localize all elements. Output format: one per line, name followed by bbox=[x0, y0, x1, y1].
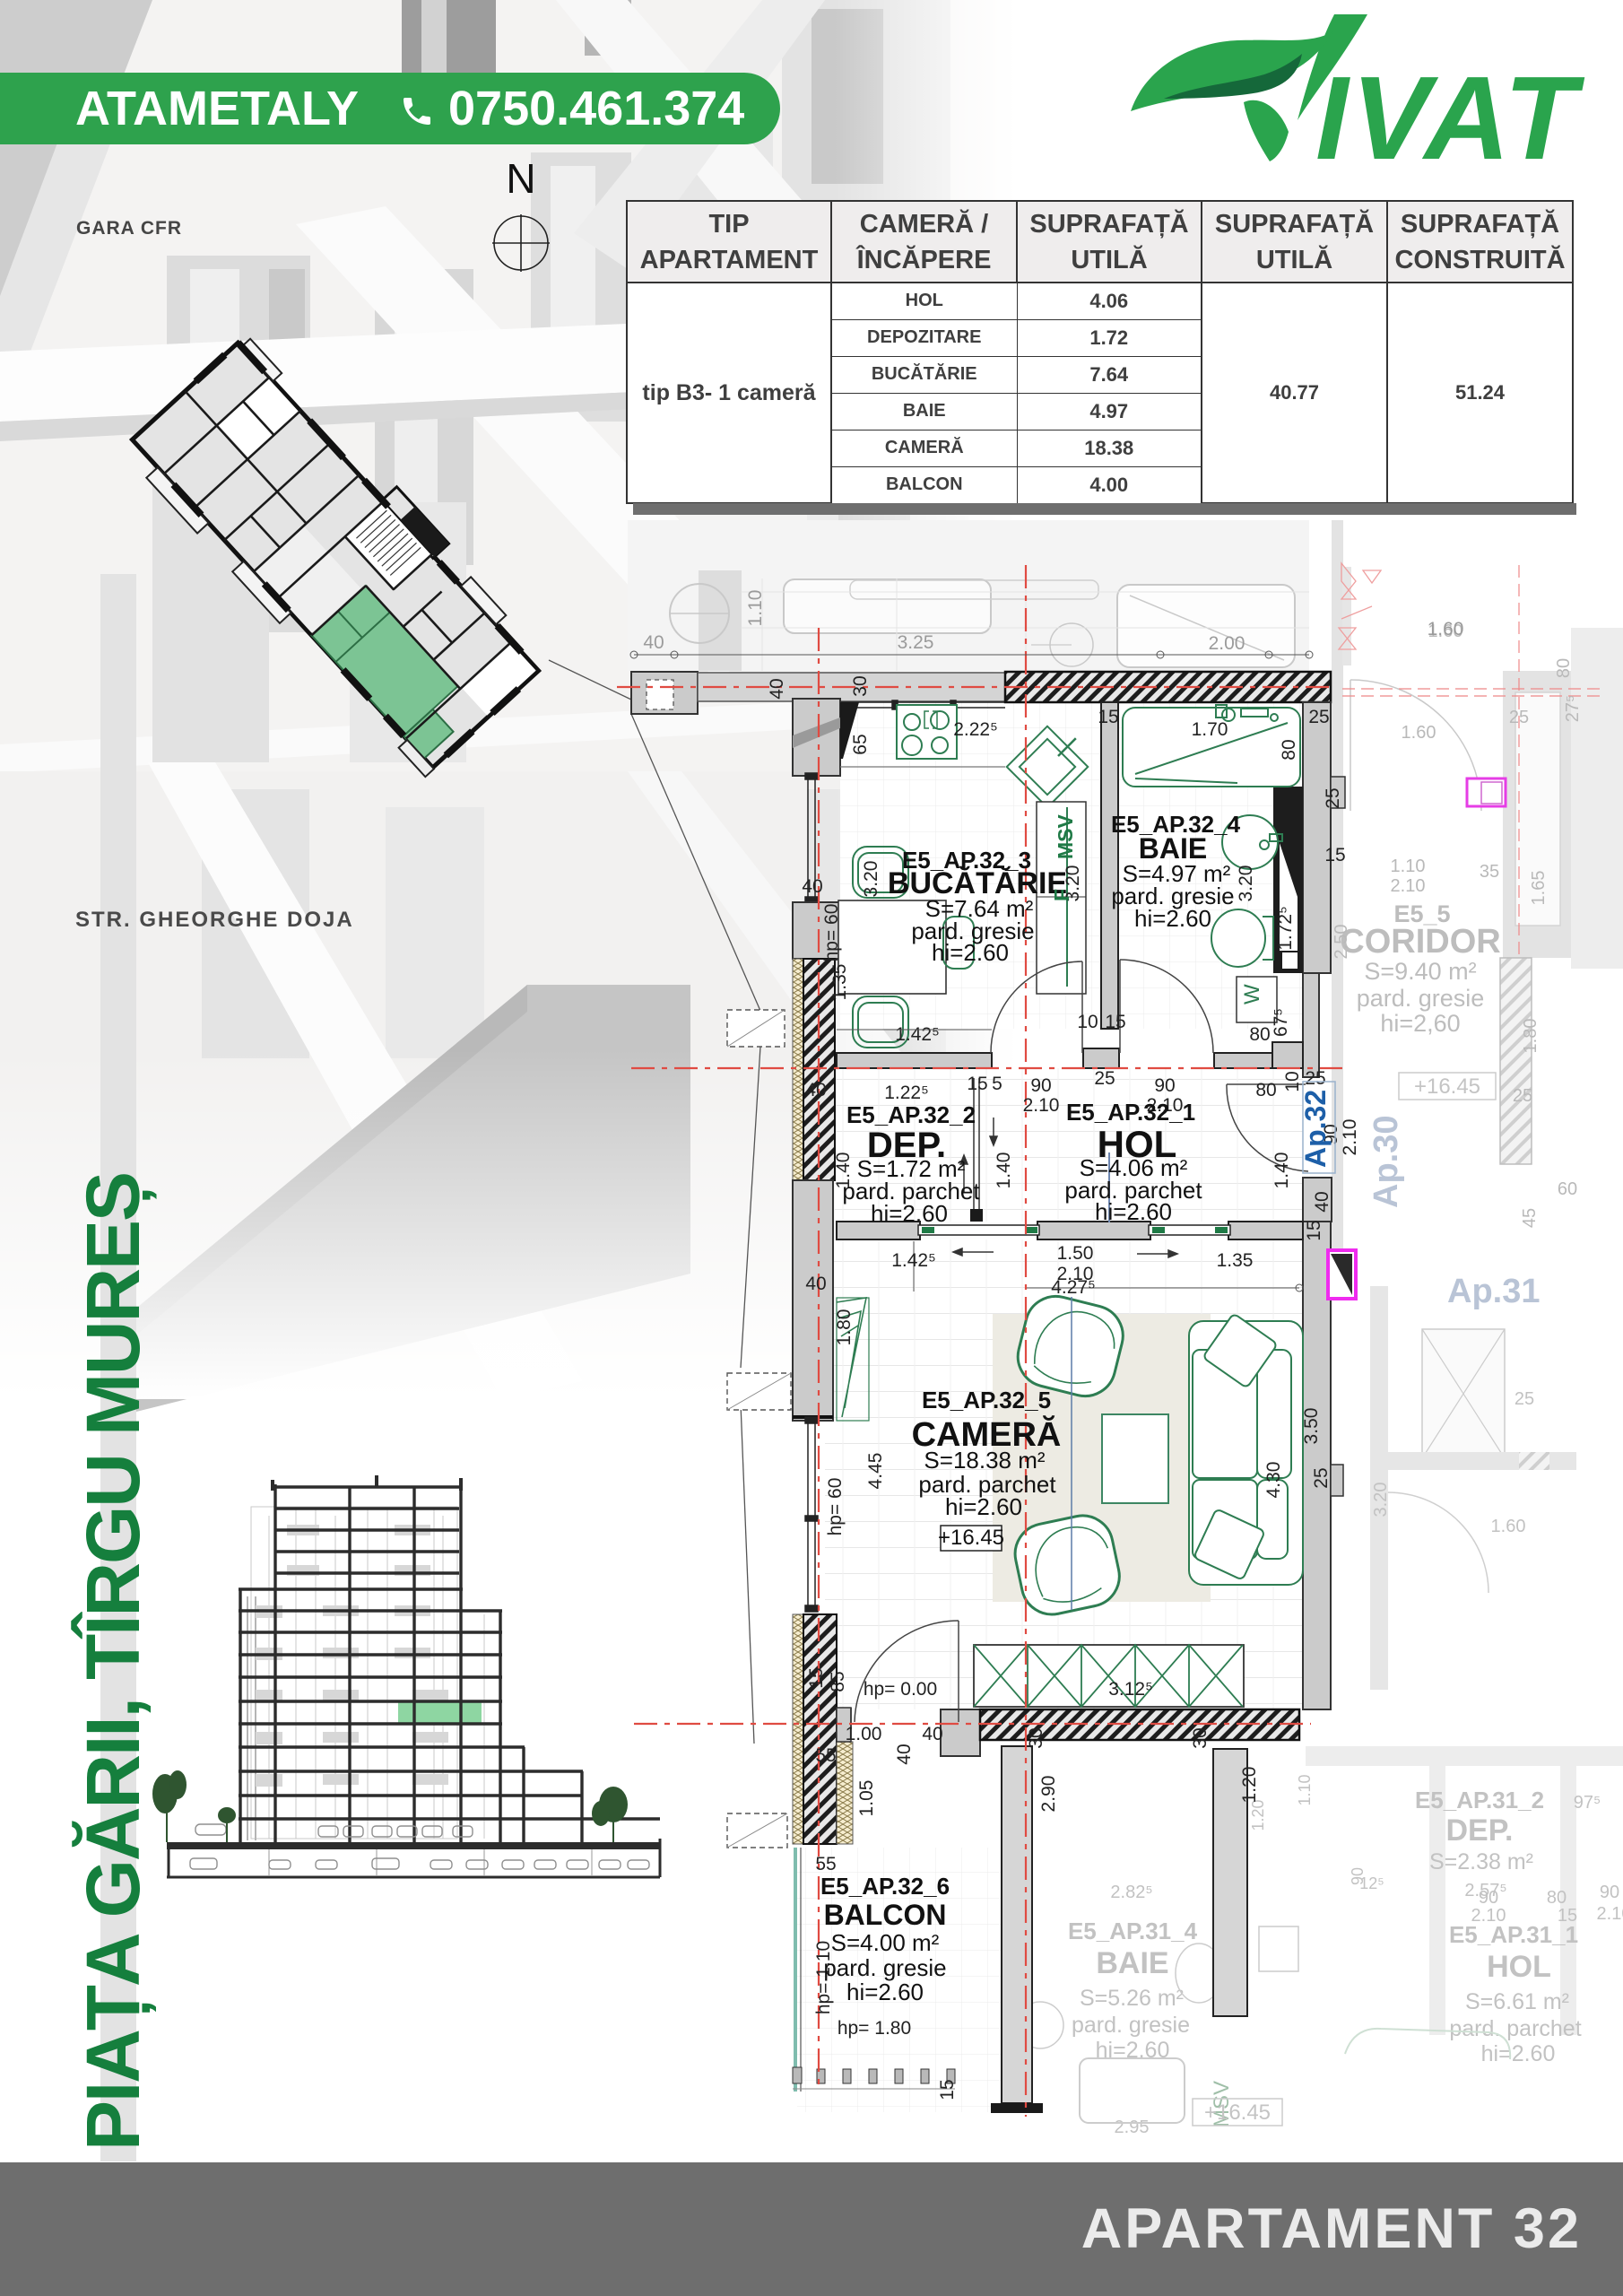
svg-text:15: 15 bbox=[967, 1074, 987, 1094]
svg-text:Ap.32: Ap.32 bbox=[1299, 1090, 1332, 1168]
svg-text:E5_AP.31_4: E5_AP.31_4 bbox=[1068, 1918, 1198, 1944]
svg-text:15: 15 bbox=[1304, 1220, 1324, 1240]
svg-text:25: 25 bbox=[1323, 787, 1343, 808]
svg-text:65: 65 bbox=[850, 734, 871, 754]
svg-text:hp= 60: hp= 60 bbox=[825, 1478, 846, 1536]
svg-text:80: 80 bbox=[1279, 739, 1299, 760]
svg-text:hp= 1.80: hp= 1.80 bbox=[838, 2018, 911, 2039]
svg-text:80: 80 bbox=[1249, 1024, 1270, 1045]
svg-text:S=6.61 m²: S=6.61 m² bbox=[1465, 1989, 1569, 2014]
svg-text:15: 15 bbox=[806, 1667, 827, 1688]
svg-text:25: 25 bbox=[1311, 1467, 1332, 1488]
svg-text:15: 15 bbox=[1105, 1012, 1125, 1032]
svg-text:hp= 60: hp= 60 bbox=[821, 904, 842, 962]
svg-text:2.10: 2.10 bbox=[1471, 1906, 1506, 1926]
svg-text:N: N bbox=[506, 157, 535, 202]
svg-text:3.20: 3.20 bbox=[1371, 1483, 1391, 1518]
svg-text:E5_AP.32_5: E5_AP.32_5 bbox=[922, 1387, 1051, 1413]
svg-text:HOL: HOL bbox=[1487, 1950, 1551, 1984]
svg-text:3.25: 3.25 bbox=[898, 632, 934, 653]
svg-text:3.20: 3.20 bbox=[1236, 865, 1256, 902]
svg-text:pard. gresie: pard. gresie bbox=[823, 1954, 946, 1981]
svg-text:hi=2.60: hi=2.60 bbox=[871, 1200, 948, 1227]
svg-text:pard. gresie: pard. gresie bbox=[1357, 985, 1485, 1012]
svg-text:S=2.38 m²: S=2.38 m² bbox=[1429, 1849, 1533, 1874]
svg-text:1.22⁵: 1.22⁵ bbox=[884, 1083, 929, 1103]
svg-text:1.60: 1.60 bbox=[1491, 1517, 1526, 1536]
svg-text:15: 15 bbox=[937, 2079, 958, 2100]
svg-text:25: 25 bbox=[1094, 1068, 1115, 1089]
svg-text:1.60: 1.60 bbox=[1428, 619, 1464, 639]
svg-text:55: 55 bbox=[815, 1745, 836, 1766]
svg-text:3.12⁵: 3.12⁵ bbox=[1108, 1679, 1153, 1700]
svg-text:1.40: 1.40 bbox=[1271, 1152, 1292, 1189]
svg-text:90: 90 bbox=[1349, 1867, 1367, 1885]
svg-text:1.10: 1.10 bbox=[1391, 857, 1426, 876]
svg-text:3.20: 3.20 bbox=[861, 861, 881, 898]
svg-text:1.72⁵: 1.72⁵ bbox=[1275, 906, 1296, 951]
svg-text:40: 40 bbox=[894, 1744, 915, 1764]
svg-text:S=4.00 m²: S=4.00 m² bbox=[831, 1929, 940, 1956]
svg-text:hi=2.60: hi=2.60 bbox=[945, 1493, 1022, 1520]
svg-text:2.10: 2.10 bbox=[1023, 1095, 1060, 1116]
svg-text:90: 90 bbox=[1030, 1075, 1051, 1096]
svg-text:90: 90 bbox=[1479, 1888, 1498, 1908]
svg-text:+16.45: +16.45 bbox=[938, 1526, 1004, 1550]
svg-text:1.50: 1.50 bbox=[1057, 1243, 1094, 1264]
svg-text:4.30: 4.30 bbox=[1263, 1462, 1284, 1499]
svg-text:1.60: 1.60 bbox=[1402, 723, 1436, 743]
svg-text:5: 5 bbox=[992, 1074, 1002, 1094]
svg-text:BAIE: BAIE bbox=[1096, 1946, 1168, 1980]
svg-text:25: 25 bbox=[1509, 708, 1529, 727]
svg-text:Ap.30: Ap.30 bbox=[1367, 1116, 1405, 1208]
svg-text:30: 30 bbox=[1190, 1727, 1211, 1748]
svg-text:90: 90 bbox=[1154, 1075, 1175, 1096]
svg-text:F: F bbox=[1050, 889, 1073, 901]
svg-text:E5_AP.32_6: E5_AP.32_6 bbox=[820, 1873, 950, 1900]
svg-text:40: 40 bbox=[805, 1080, 826, 1100]
svg-text:80: 80 bbox=[1255, 1080, 1276, 1100]
svg-text:2.82⁵: 2.82⁵ bbox=[1110, 1883, 1152, 1902]
svg-text:10: 10 bbox=[1077, 1012, 1098, 1032]
svg-text:1.20: 1.20 bbox=[1239, 1767, 1260, 1804]
svg-text:40: 40 bbox=[1312, 1191, 1332, 1212]
svg-text:2.90: 2.90 bbox=[1038, 1776, 1059, 1813]
svg-text:25: 25 bbox=[1305, 1068, 1325, 1089]
svg-text:40: 40 bbox=[805, 1274, 826, 1294]
svg-text:E5_AP.32_1: E5_AP.32_1 bbox=[1066, 1099, 1195, 1126]
svg-text:hi=2.60: hi=2.60 bbox=[1134, 905, 1211, 932]
svg-text:40: 40 bbox=[767, 678, 787, 699]
svg-text:hi=2.60: hi=2.60 bbox=[846, 1979, 924, 2005]
svg-text:1.65: 1.65 bbox=[1529, 871, 1549, 906]
svg-text:30: 30 bbox=[850, 675, 871, 696]
svg-text:2.50: 2.50 bbox=[1332, 925, 1351, 960]
svg-text:97⁵: 97⁵ bbox=[1574, 1793, 1601, 1813]
svg-text:pard. gresie: pard. gresie bbox=[1072, 2013, 1190, 2038]
svg-text:3.50: 3.50 bbox=[1301, 1408, 1322, 1445]
svg-text:15: 15 bbox=[1324, 845, 1345, 865]
svg-text:15: 15 bbox=[1098, 707, 1118, 727]
svg-text:1.20: 1.20 bbox=[1249, 1799, 1267, 1831]
svg-text:80: 80 bbox=[1554, 658, 1574, 678]
svg-text:4.45: 4.45 bbox=[865, 1453, 886, 1490]
svg-text:90: 90 bbox=[1600, 1883, 1619, 1902]
svg-text:W: W bbox=[1240, 984, 1264, 1004]
svg-text:60: 60 bbox=[1558, 1179, 1577, 1199]
svg-text:2.00: 2.00 bbox=[1209, 633, 1245, 654]
svg-text:30: 30 bbox=[1026, 1727, 1046, 1748]
svg-text:hi=2.60: hi=2.60 bbox=[1481, 2041, 1556, 2066]
svg-text:25: 25 bbox=[1513, 1086, 1532, 1106]
svg-text:+16.45: +16.45 bbox=[1414, 1074, 1480, 1099]
svg-text:E5_AP.31_2: E5_AP.31_2 bbox=[1415, 1787, 1544, 1813]
svg-text:2.95: 2.95 bbox=[1115, 2118, 1150, 2137]
svg-text:2.10: 2.10 bbox=[1340, 1119, 1360, 1156]
svg-text:2.10: 2.10 bbox=[1391, 876, 1426, 896]
svg-text:S=18.38 m²: S=18.38 m² bbox=[924, 1447, 1045, 1474]
svg-text:2.10: 2.10 bbox=[1597, 1904, 1623, 1924]
svg-text:CORIDOR: CORIDOR bbox=[1340, 923, 1500, 961]
svg-text:IVAT: IVAT bbox=[1315, 52, 1584, 184]
svg-text:DEP.: DEP. bbox=[1446, 1813, 1514, 1848]
svg-text:45: 45 bbox=[1520, 1208, 1540, 1228]
svg-text:1.42⁵: 1.42⁵ bbox=[891, 1250, 936, 1271]
svg-text:MSV: MSV bbox=[1054, 814, 1077, 860]
svg-text:hi=2.60: hi=2.60 bbox=[932, 939, 1009, 966]
svg-text:40: 40 bbox=[922, 1724, 942, 1744]
svg-text:hp= 0.00: hp= 0.00 bbox=[864, 1679, 937, 1700]
svg-text:1.40: 1.40 bbox=[994, 1152, 1014, 1189]
svg-text:1.35: 1.35 bbox=[1217, 1250, 1254, 1271]
svg-text:1.80: 1.80 bbox=[834, 1309, 855, 1346]
svg-text:hi=2.60: hi=2.60 bbox=[1095, 1198, 1172, 1225]
svg-text:E5_AP.32_2: E5_AP.32_2 bbox=[846, 1101, 976, 1128]
svg-text:40: 40 bbox=[802, 876, 822, 897]
svg-text:1.70: 1.70 bbox=[1192, 719, 1228, 740]
svg-text:40: 40 bbox=[643, 632, 664, 653]
svg-text:Ap.31: Ap.31 bbox=[1447, 1273, 1540, 1310]
svg-text:pard. parchet: pard. parchet bbox=[1449, 2016, 1581, 2041]
svg-text:2.22⁵: 2.22⁵ bbox=[953, 719, 998, 740]
svg-text:1.05: 1.05 bbox=[856, 1780, 877, 1817]
svg-text:67⁵: 67⁵ bbox=[1271, 1008, 1291, 1037]
svg-text:1.80: 1.80 bbox=[1521, 1019, 1541, 1054]
svg-text:S=9.40 m²: S=9.40 m² bbox=[1364, 958, 1476, 985]
svg-text:1.10: 1.10 bbox=[745, 590, 766, 627]
svg-text:25: 25 bbox=[1515, 1389, 1534, 1409]
svg-text:S=5.26 m²: S=5.26 m² bbox=[1080, 1986, 1184, 2011]
svg-text:1.35: 1.35 bbox=[829, 964, 850, 1001]
svg-text:35: 35 bbox=[1480, 862, 1499, 882]
svg-text:85: 85 bbox=[828, 1671, 848, 1692]
svg-text:10: 10 bbox=[1282, 1071, 1303, 1091]
svg-text:55: 55 bbox=[815, 1854, 836, 1874]
svg-text:hi=2,60: hi=2,60 bbox=[1380, 1010, 1460, 1037]
svg-text:1.10: 1.10 bbox=[1296, 1774, 1314, 1805]
svg-text:+16.45: +16.45 bbox=[1204, 2100, 1271, 2125]
svg-text:80: 80 bbox=[1547, 1888, 1567, 1908]
svg-text:15: 15 bbox=[1558, 1906, 1577, 1926]
svg-text:BALCON: BALCON bbox=[824, 1899, 947, 1931]
svg-text:1.00: 1.00 bbox=[846, 1724, 882, 1744]
svg-text:27⁵: 27⁵ bbox=[1563, 695, 1583, 723]
svg-text:4.27⁵: 4.27⁵ bbox=[1051, 1277, 1096, 1298]
svg-text:1.42⁵: 1.42⁵ bbox=[895, 1024, 940, 1045]
svg-text:25: 25 bbox=[1308, 707, 1329, 727]
